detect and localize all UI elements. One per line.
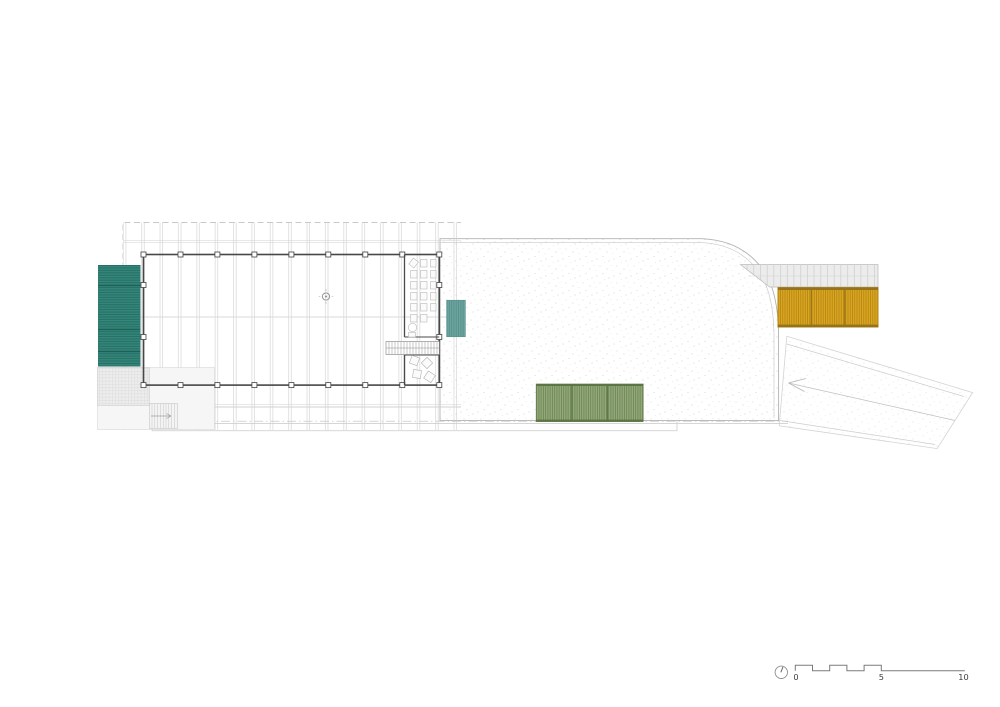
scale-label-5: 5 bbox=[879, 672, 884, 682]
roof-plan-page: 0 5 10 bbox=[0, 0, 1000, 707]
roof-plan-drawing: 0 5 10 bbox=[0, 0, 1000, 707]
interior-stair bbox=[386, 342, 439, 355]
scale-label-0: 0 bbox=[793, 672, 798, 682]
north-indicator-icon bbox=[775, 666, 787, 678]
scale-bar-profile bbox=[795, 665, 965, 671]
exterior-stair bbox=[150, 404, 178, 429]
access-ramp bbox=[779, 336, 972, 448]
yellow-louver-roof bbox=[778, 287, 878, 327]
small-teal-canopy bbox=[447, 300, 466, 337]
green-louver-roof bbox=[536, 384, 643, 422]
scale-label-10: 10 bbox=[958, 672, 968, 682]
left-teal-louver-roof bbox=[98, 265, 141, 367]
scale-bar: 0 5 10 bbox=[793, 665, 968, 682]
